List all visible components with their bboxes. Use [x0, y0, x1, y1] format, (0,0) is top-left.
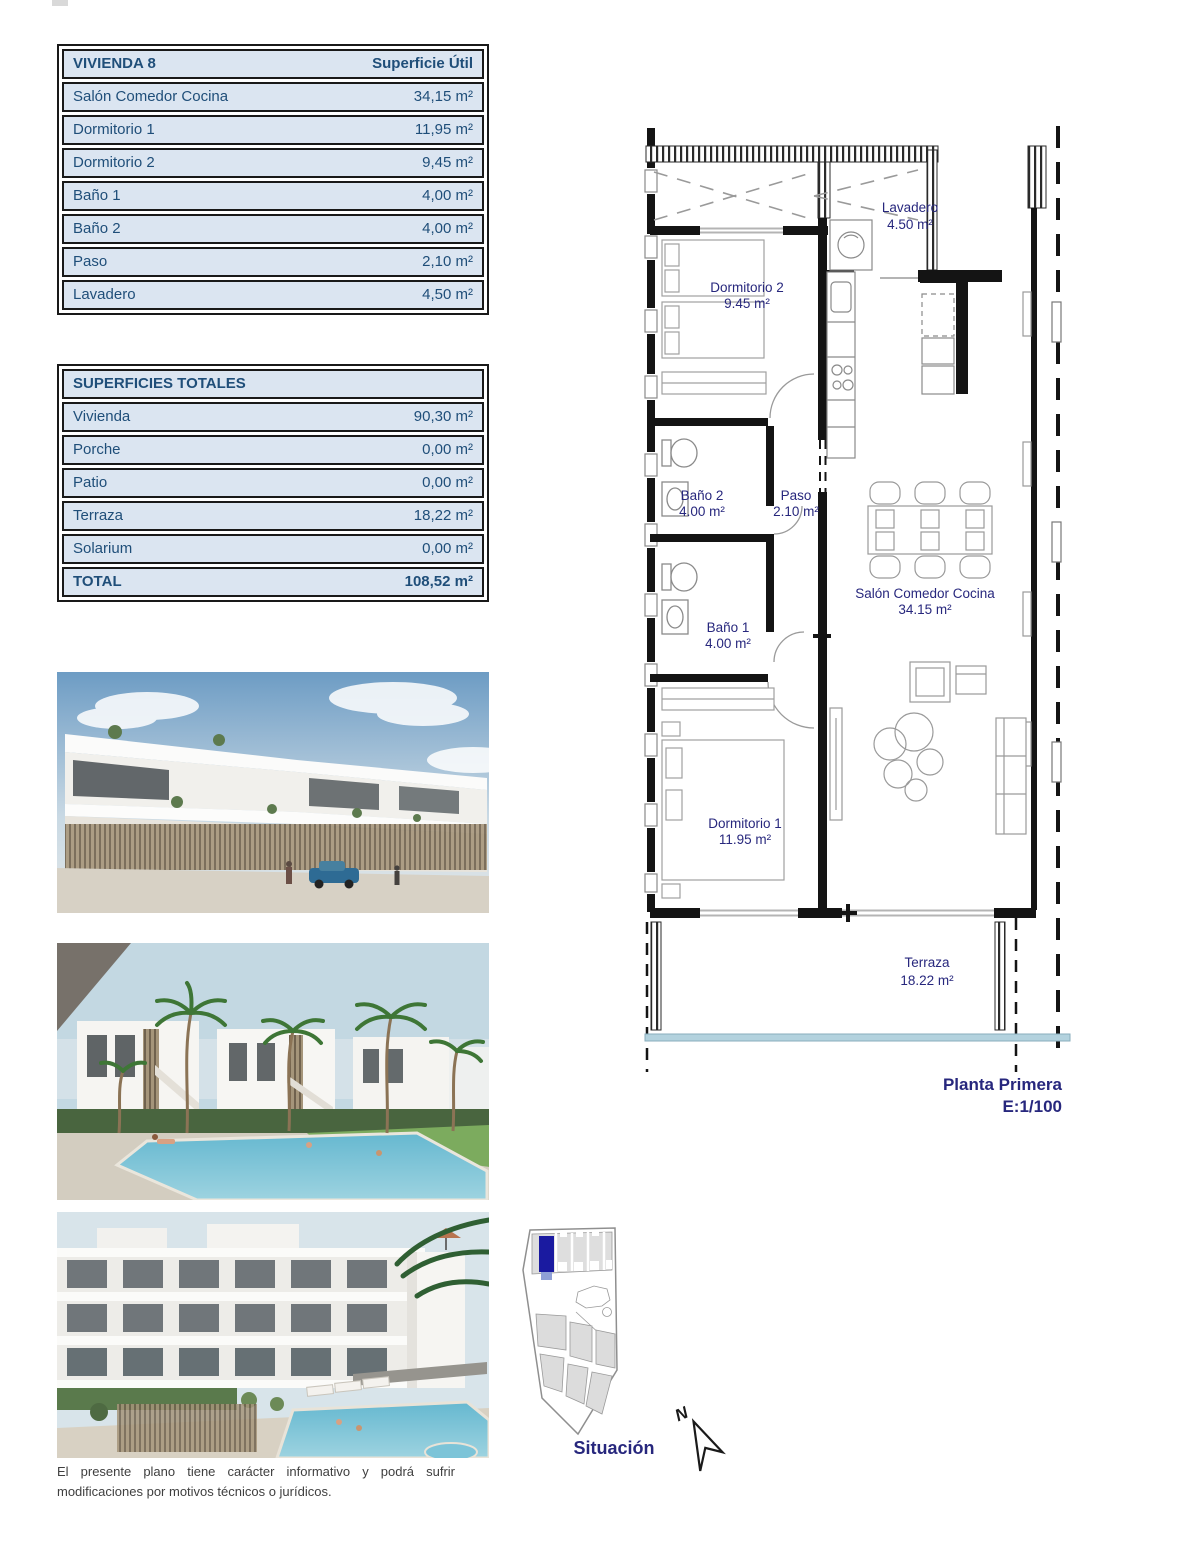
highlighted-unit-terrace [541, 1272, 552, 1280]
room-label: Dormitorio 2 [73, 153, 155, 173]
wall-opening [820, 440, 826, 492]
room-area-bath2: 4.00 m² [679, 504, 725, 519]
compass-needle [681, 1416, 726, 1471]
total-label: Terraza [73, 506, 123, 526]
room-area-bath1: 4.00 m² [705, 636, 751, 651]
table-row: Terraza 18,22 m² [62, 501, 484, 531]
room-value: 9,45 m² [422, 153, 473, 173]
table-row: Baño 2 4,00 m² [62, 214, 484, 244]
highlighted-unit [539, 1236, 554, 1272]
table-row: Patio 0,00 m² [62, 468, 484, 498]
room-value: 11,95 m² [415, 120, 473, 140]
table-title: VIVIENDA 8 [73, 54, 156, 74]
room-label: Salón Comedor Cocina [73, 87, 228, 107]
table-row: Dormitorio 2 9,45 m² [62, 148, 484, 178]
dorm2-furniture [662, 240, 766, 394]
street-render-image [57, 672, 489, 913]
total-label: Vivienda [73, 407, 130, 427]
total-value: 0,00 m² [422, 539, 473, 559]
room-label: Dormitorio 1 [73, 120, 155, 140]
room-value: 4,50 m² [422, 285, 473, 305]
living-furniture [830, 662, 1026, 834]
room-label: Paso [73, 252, 107, 272]
floor-plan: Lavadero 4.50 m² Dormitorio 2 9.45 m² Ba… [618, 122, 1204, 1132]
lavadero-appliances [830, 220, 872, 270]
room-area-dorm1: 11.95 m² [719, 832, 772, 847]
void-diagonals [654, 170, 918, 220]
disclaimer-text: El presente plano tiene carácter informa… [57, 1462, 455, 1502]
kitchen-counter [827, 272, 855, 458]
total-label: Patio [73, 473, 107, 493]
plan-title: Planta Primera [943, 1075, 1063, 1094]
pool-render-image [57, 943, 489, 1200]
total-value: 90,30 m² [414, 407, 473, 427]
bath1-fixtures [662, 563, 697, 634]
table-header-row: VIVIENDA 8 Superficie Útil [62, 49, 484, 79]
north-letter: N [672, 1403, 692, 1426]
site-map-drawing [514, 1226, 660, 1438]
room-value: 4,00 m² [422, 219, 473, 239]
wood-fence [117, 1404, 257, 1452]
table-row: Lavadero 4,50 m² [62, 280, 484, 310]
room-value: 34,15 m² [414, 87, 473, 107]
fridge-column [922, 294, 954, 394]
room-area-salon: 34.15 m² [898, 602, 952, 617]
spa [425, 1443, 477, 1458]
room-label: Baño 2 [73, 219, 121, 239]
room-value: 4,00 m² [422, 186, 473, 206]
floor-plan-drawing: Lavadero 4.50 m² Dormitorio 2 9.45 m² Ba… [618, 122, 1204, 1132]
room-label-dorm2: Dormitorio 2 [710, 280, 784, 295]
room-label-salon: Salón Comedor Cocina [855, 586, 995, 601]
table-row: Solarium 0,00 m² [62, 534, 484, 564]
table-row: Baño 1 4,00 m² [62, 181, 484, 211]
plan-scale: E:1/100 [1002, 1097, 1062, 1116]
render-photo-pool [57, 943, 489, 1200]
north-arrow-icon: N [664, 1392, 736, 1478]
room-label-bath2: Baño 2 [681, 488, 724, 503]
table-total-row: TOTAL 108,52 m² [62, 567, 484, 597]
room-label: Baño 1 [73, 186, 121, 206]
table-row: Vivienda 90,30 m² [62, 402, 484, 432]
site-map [514, 1226, 660, 1438]
table-row: Salón Comedor Cocina 34,15 m² [62, 82, 484, 112]
render-photo-street [57, 672, 489, 913]
door-swings [768, 374, 814, 728]
total-value: 0,00 m² [422, 440, 473, 460]
table-row: Dormitorio 1 11,95 m² [62, 115, 484, 145]
brochure-page: VIVIENDA 8 Superficie Útil Salón Comedor… [0, 0, 1204, 1549]
grand-total-value: 108,52 m² [405, 572, 473, 592]
total-label: Porche [73, 440, 121, 460]
room-label-bath1: Baño 1 [707, 620, 750, 635]
apartments-render-image [57, 1212, 489, 1458]
dorm1-furniture [662, 688, 784, 898]
room-area-dorm2: 9.45 m² [724, 296, 770, 311]
room-area-lavadero: 4.50 m² [887, 217, 933, 232]
total-value: 18,22 m² [414, 506, 473, 526]
table-row: Porche 0,00 m² [62, 435, 484, 465]
room-value: 2,10 m² [422, 252, 473, 272]
plot-boundary [1052, 126, 1061, 1062]
room-area-paso: 2.10 m² [773, 504, 819, 519]
room-area-terraza: 18.22 m² [900, 973, 954, 988]
table-title: SUPERFICIES TOTALES [73, 374, 246, 394]
page-corner-mark [52, 0, 68, 6]
grand-total-label: TOTAL [73, 572, 122, 592]
room-label-lavadero: Lavadero [882, 200, 938, 215]
right-wall-windows [1023, 292, 1031, 766]
render-photo-apartments [57, 1212, 489, 1458]
table-row: Paso 2,10 m² [62, 247, 484, 277]
total-value: 0,00 m² [422, 473, 473, 493]
table-header-row: SUPERFICIES TOTALES [62, 369, 484, 399]
totales-table: SUPERFICIES TOTALES Vivienda 90,30 m² Po… [57, 364, 489, 602]
room-label-dorm1: Dormitorio 1 [708, 816, 782, 831]
entry-door-leaf [920, 275, 956, 283]
room-label-paso: Paso [781, 488, 812, 503]
total-label: Solarium [73, 539, 132, 559]
room-label-terraza: Terraza [904, 955, 950, 970]
building-facade [57, 1224, 465, 1388]
vivienda-table: VIVIENDA 8 Superficie Útil Salón Comedor… [57, 44, 489, 315]
dining-set [868, 482, 992, 578]
table-header-right: Superficie Útil [372, 54, 473, 74]
room-label: Lavadero [73, 285, 136, 305]
terrace [645, 918, 1070, 1072]
north-arrow: N [664, 1392, 736, 1478]
